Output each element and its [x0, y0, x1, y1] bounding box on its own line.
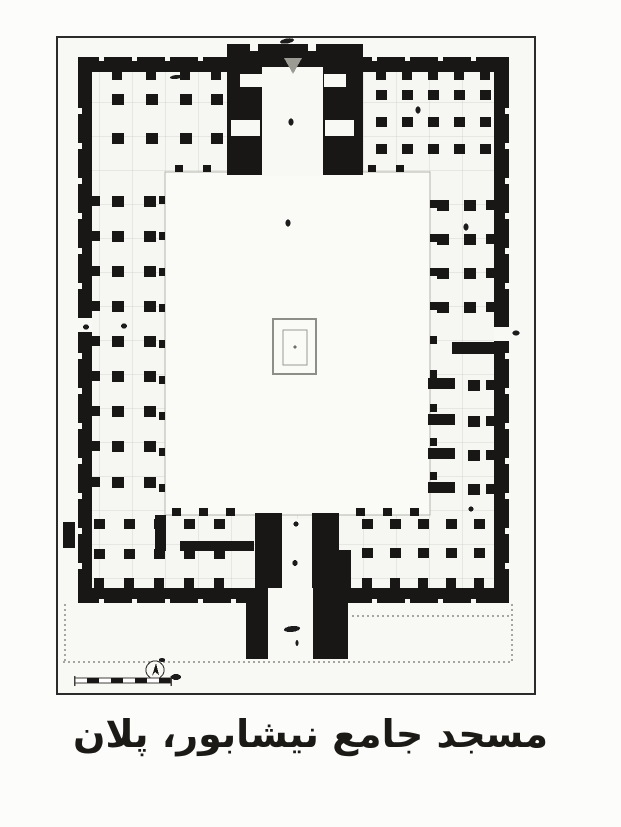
southeast-hypostyle-column — [418, 519, 429, 529]
wall-notch — [505, 143, 509, 149]
pier-stub — [203, 165, 211, 172]
pier-stub — [362, 578, 372, 588]
wall-notch — [165, 57, 170, 61]
pier-stub — [486, 268, 494, 278]
pier-stub — [159, 304, 165, 312]
northwest-hypostyle-column — [211, 133, 223, 144]
pier-stub — [159, 268, 165, 276]
wall-notch — [505, 353, 509, 359]
northeast-hypostyle-column — [376, 90, 387, 100]
northeast-hypostyle-column — [454, 144, 465, 154]
pier-stub — [159, 484, 165, 492]
pier-stub — [92, 371, 100, 381]
east-wing-lower-hypostyle-column — [468, 450, 480, 461]
wall-notch — [471, 57, 476, 61]
northwest-hypostyle-column — [180, 133, 192, 144]
scale-bar-segment — [111, 678, 123, 683]
east-wing-upper-hypostyle-column — [437, 268, 449, 279]
southeast-hypostyle-column — [446, 548, 457, 558]
pier-stub — [159, 448, 165, 456]
wall-notch — [78, 143, 82, 149]
pier-stub — [486, 234, 494, 244]
figure-caption: مسجد جامع نیشابور، پلان — [0, 712, 621, 756]
southwest-hypostyle-column — [94, 549, 105, 559]
pier-stub — [214, 578, 224, 588]
east-wing-lower-hypostyle-column — [468, 416, 480, 427]
pier-stub — [199, 508, 208, 516]
south-iwan-pier-right — [312, 513, 339, 553]
pier-stub — [430, 302, 437, 310]
pier-stub — [159, 376, 165, 384]
annotation-mark — [464, 224, 469, 231]
pier-stub — [430, 404, 437, 412]
wall-notch — [78, 178, 82, 184]
southeast-hypostyle-column — [362, 548, 373, 558]
pier-stub — [159, 232, 165, 240]
pier-stub — [486, 200, 494, 210]
east-wing-lower-hypostyle-column — [468, 380, 480, 391]
pier-stub — [226, 508, 235, 516]
wall-notch — [198, 57, 203, 61]
pier-stub — [92, 231, 100, 241]
pier-stub — [175, 165, 183, 172]
northeast-hypostyle-column — [454, 90, 465, 100]
pier-stub — [474, 578, 484, 588]
south-iwan-pier-left — [255, 513, 282, 591]
southwest-hypostyle-column — [184, 519, 195, 529]
annotation-mark — [286, 220, 291, 227]
pier-stub — [390, 578, 400, 588]
pier-stub — [430, 370, 437, 378]
pier-stub — [480, 72, 490, 80]
northwest-hypostyle-column — [112, 133, 124, 144]
pier-stub — [184, 578, 194, 588]
pool-center-dot — [293, 345, 296, 348]
wall-notch — [231, 599, 236, 603]
west-wing-hypostyle-column — [112, 477, 124, 488]
scale-bar-segment — [135, 678, 147, 683]
wall-notch — [505, 423, 509, 429]
northeast-hypostyle-column — [402, 90, 413, 100]
wall-notch — [78, 528, 82, 534]
west-wing-hypostyle-column — [112, 441, 124, 452]
annotation-mark — [294, 522, 299, 527]
northeast-hypostyle-column — [428, 90, 439, 100]
scale-bar-segment — [159, 678, 171, 683]
west-wing-hypostyle-column — [112, 196, 124, 207]
southwest-hypostyle-column — [154, 549, 165, 559]
pier-stub — [486, 416, 494, 426]
wall-notch — [78, 213, 82, 219]
wall-notch — [99, 57, 104, 61]
annotation-mark — [513, 331, 520, 336]
pier-stub — [92, 196, 100, 206]
wall-notch — [78, 248, 82, 254]
east-wing-upper-hypostyle-column — [464, 234, 476, 245]
mosque-floor-plan — [0, 0, 621, 700]
pier-stub — [356, 508, 365, 516]
south-iwan-pier-right-ext — [312, 550, 351, 591]
wall-notch — [132, 599, 137, 603]
pier-stub — [428, 72, 438, 80]
east-wing-upper-hypostyle-column — [464, 302, 476, 313]
west-wing-hypostyle-column — [144, 336, 156, 347]
west-wing-hypostyle-column — [144, 196, 156, 207]
annotation-mark — [416, 107, 421, 114]
pier-stub — [92, 336, 100, 346]
east-wing-divider-wall — [452, 342, 497, 354]
south-iwan-chamber — [282, 519, 312, 589]
pier-stub — [486, 450, 494, 460]
pier-bar — [428, 378, 455, 389]
pier-stub — [368, 165, 376, 172]
pier-bar — [428, 482, 455, 493]
southwest-hypostyle-column — [94, 519, 105, 529]
scanned-book-page: مسجد جامع نیشابور، پلان — [0, 0, 621, 827]
northwest-hypostyle-column — [146, 94, 158, 105]
pier-stub — [430, 438, 437, 446]
northeast-hypostyle-column — [480, 144, 491, 154]
iwan-niche — [240, 74, 262, 87]
pier-stub — [383, 508, 392, 516]
iwan-notch — [250, 44, 258, 51]
wall-notch — [505, 458, 509, 464]
west-wing-hypostyle-column — [144, 441, 156, 452]
southwest-hypostyle-column — [124, 549, 135, 559]
northwest-hypostyle-column — [180, 94, 192, 105]
southeast-hypostyle-column — [390, 548, 401, 558]
pier-stub — [146, 72, 156, 80]
wall-notch — [505, 528, 509, 534]
southeast-hypostyle-column — [390, 519, 401, 529]
pier-stub — [430, 268, 437, 276]
north-wall-east — [362, 57, 509, 72]
scale-bar-segment — [87, 678, 99, 683]
southeast-hypostyle-column — [474, 519, 485, 529]
pier-stub — [486, 484, 494, 494]
southeast-hypostyle-column — [418, 548, 429, 558]
wall-notch — [505, 248, 509, 254]
wall-notch — [165, 599, 170, 603]
wall-notch — [505, 563, 509, 569]
wall-notch — [198, 599, 203, 603]
wall-notch — [78, 283, 82, 289]
iwan-notch — [308, 44, 316, 51]
pier-stub — [159, 196, 165, 204]
pier-stub — [172, 508, 181, 516]
wall-notch — [505, 283, 509, 289]
wall-notch — [78, 353, 82, 359]
courtyard — [165, 172, 430, 515]
pier-stub — [92, 406, 100, 416]
pier-stub — [430, 200, 437, 208]
portal-tower-right — [313, 603, 348, 659]
annotation-mark — [289, 119, 294, 126]
pier-stub — [454, 72, 464, 80]
wall-notch — [78, 423, 82, 429]
west-wing-hypostyle-column — [112, 406, 124, 417]
southwest-hypostyle-column — [154, 519, 165, 529]
northeast-hypostyle-column — [376, 117, 387, 127]
wall-notch — [132, 57, 137, 61]
south-portal-corridor — [268, 588, 313, 659]
pier-stub — [112, 72, 122, 80]
east-entrance-gap — [494, 327, 509, 341]
wall-notch — [505, 493, 509, 499]
wall-notch — [372, 599, 377, 603]
northeast-hypostyle-column — [402, 144, 413, 154]
northeast-hypostyle-column — [428, 117, 439, 127]
east-wing-upper-hypostyle-column — [437, 234, 449, 245]
wall-notch — [78, 493, 82, 499]
annotation-mark — [171, 674, 181, 680]
pier-stub — [159, 412, 165, 420]
annotation-mark — [83, 325, 89, 330]
pier-stub — [159, 340, 165, 348]
wall-notch — [78, 563, 82, 569]
northwest-hypostyle-column — [146, 133, 158, 144]
wall-notch — [505, 178, 509, 184]
northwest-hypostyle-column — [211, 94, 223, 105]
annotation-mark — [293, 560, 298, 566]
wall-notch — [505, 388, 509, 394]
iwan-niche — [325, 120, 354, 136]
northeast-hypostyle-column — [454, 117, 465, 127]
pier-stub — [211, 72, 221, 80]
northeast-hypostyle-column — [480, 90, 491, 100]
wall-notch — [372, 57, 377, 61]
west-wing-hypostyle-column — [144, 406, 156, 417]
southeast-hypostyle-column — [474, 548, 485, 558]
southwest-hypostyle-column — [214, 549, 225, 559]
pier-stub — [92, 301, 100, 311]
pier-stub — [92, 441, 100, 451]
west-wing-hypostyle-column — [144, 301, 156, 312]
pier-stub — [94, 578, 104, 588]
northeast-hypostyle-column — [402, 117, 413, 127]
annotation-mark — [469, 507, 474, 512]
pier-stub — [376, 72, 386, 80]
east-wing-upper-hypostyle-column — [464, 200, 476, 211]
wall-notch — [78, 458, 82, 464]
southwest-hypostyle-column — [184, 549, 195, 559]
west-wing-hypostyle-column — [144, 231, 156, 242]
annotation-mark — [121, 324, 127, 329]
west-wing-hypostyle-column — [144, 477, 156, 488]
north-arrow-flag — [159, 658, 165, 662]
southeast-hypostyle-column — [362, 519, 373, 529]
northwest-hypostyle-column — [112, 94, 124, 105]
southwest-buttress — [63, 522, 75, 548]
east-wing-upper-hypostyle-column — [437, 200, 449, 211]
pier-stub — [430, 472, 437, 480]
pier-stub — [92, 266, 100, 276]
scale-bar-tick — [74, 676, 76, 686]
southwest-hypostyle-column — [214, 519, 225, 529]
wall-notch — [438, 57, 443, 61]
iwan-niche — [324, 74, 346, 87]
pier-stub — [486, 302, 494, 312]
iwan-niche — [231, 120, 260, 136]
pier-stub — [402, 72, 412, 80]
wall-notch — [78, 108, 82, 114]
pier-stub — [92, 477, 100, 487]
pier-bar — [428, 448, 455, 459]
southwest-hypostyle-column — [124, 519, 135, 529]
pier-stub — [410, 508, 419, 516]
northeast-hypostyle-column — [480, 117, 491, 127]
annotation-mark — [296, 640, 299, 646]
west-wing-hypostyle-column — [112, 266, 124, 277]
pier-stub — [418, 578, 428, 588]
pier-stub — [124, 578, 134, 588]
wall-notch — [405, 57, 410, 61]
west-wing-hypostyle-column — [112, 301, 124, 312]
southeast-hypostyle-column — [446, 519, 457, 529]
west-wing-hypostyle-column — [144, 371, 156, 382]
northeast-hypostyle-column — [376, 144, 387, 154]
wall-notch — [99, 599, 104, 603]
east-wing-upper-hypostyle-column — [464, 268, 476, 279]
portal-tower-left — [246, 603, 268, 659]
wall-notch — [505, 213, 509, 219]
pier-stub — [154, 578, 164, 588]
west-wing-hypostyle-column — [112, 231, 124, 242]
pier-stub — [430, 234, 437, 242]
pier-stub — [430, 336, 437, 344]
wall-notch — [505, 108, 509, 114]
pier-stub — [486, 380, 494, 390]
wall-notch — [471, 599, 476, 603]
east-wing-lower-hypostyle-column — [468, 484, 480, 495]
wall-notch — [78, 388, 82, 394]
west-wing-hypostyle-column — [112, 336, 124, 347]
pier-stub — [446, 578, 456, 588]
west-wing-hypostyle-column — [112, 371, 124, 382]
wall-notch — [405, 599, 410, 603]
wall-notch — [438, 599, 443, 603]
west-wing-hypostyle-column — [144, 266, 156, 277]
pier-bar — [428, 414, 455, 425]
pier-stub — [396, 165, 404, 172]
northeast-hypostyle-column — [428, 144, 439, 154]
east-wing-upper-hypostyle-column — [437, 302, 449, 313]
